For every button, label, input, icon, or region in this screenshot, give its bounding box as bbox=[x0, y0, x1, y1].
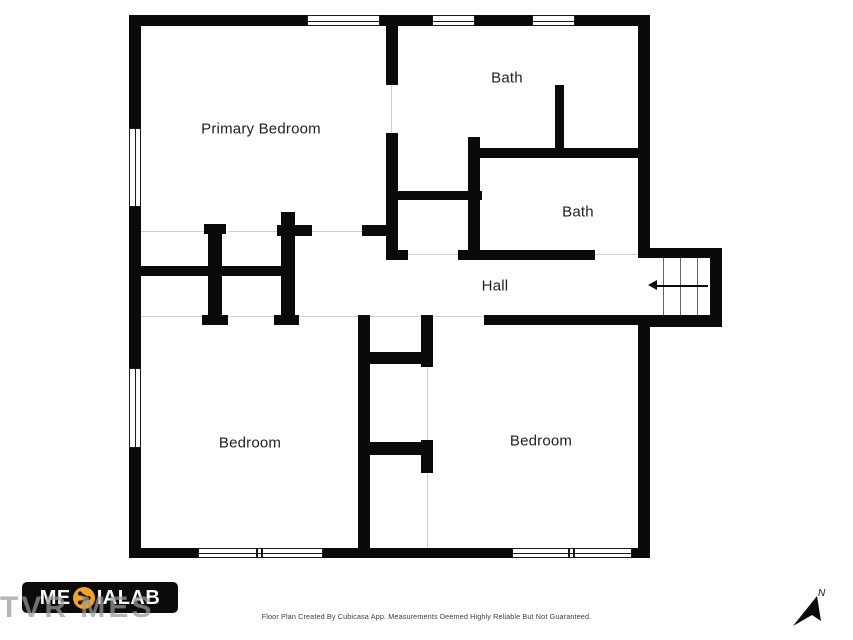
window-center-line bbox=[533, 21, 574, 22]
door-opening bbox=[141, 316, 202, 317]
window-mullion bbox=[261, 549, 263, 557]
stair-direction-arrow bbox=[648, 280, 657, 290]
window-mullion bbox=[256, 549, 258, 557]
window-center-line bbox=[135, 369, 136, 447]
stair-direction-line bbox=[657, 285, 708, 287]
wall-segment bbox=[638, 315, 722, 327]
window bbox=[532, 15, 575, 26]
door-opening bbox=[228, 231, 277, 232]
room-label-hall: Hall bbox=[482, 278, 509, 295]
window-center-line bbox=[513, 553, 631, 554]
wall-segment bbox=[204, 224, 226, 234]
room-label-bath-upper: Bath bbox=[491, 70, 523, 87]
window bbox=[307, 15, 380, 26]
wall-segment bbox=[274, 315, 299, 325]
door-opening bbox=[433, 316, 484, 317]
door-opening bbox=[427, 367, 428, 440]
window-center-line bbox=[433, 21, 474, 22]
door-opening bbox=[408, 254, 458, 255]
wall-segment bbox=[362, 225, 398, 236]
north-compass: N bbox=[790, 586, 836, 634]
wall-segment bbox=[638, 15, 650, 258]
door-opening bbox=[595, 254, 638, 255]
watermark-text: TVR MES bbox=[0, 591, 154, 625]
door-opening bbox=[312, 231, 362, 232]
wall-segment bbox=[129, 15, 141, 558]
wall-segment bbox=[387, 191, 482, 200]
door-opening bbox=[228, 316, 274, 317]
window bbox=[129, 128, 141, 207]
north-arrow-icon bbox=[790, 594, 826, 630]
wall-segment bbox=[638, 315, 650, 558]
wall-segment bbox=[277, 225, 312, 236]
room-label-bath-lower: Bath bbox=[562, 204, 594, 221]
wall-segment bbox=[386, 250, 408, 260]
door-opening bbox=[391, 85, 392, 133]
wall-segment bbox=[358, 315, 370, 558]
room-label-bedroom-left: Bedroom bbox=[219, 435, 281, 452]
wall-segment bbox=[555, 85, 564, 155]
wall-segment bbox=[386, 26, 398, 85]
window-mullion bbox=[568, 549, 570, 557]
window-center-line bbox=[135, 129, 136, 206]
floor-plan-page: Primary BedroomBathBathHallBedroomBedroo… bbox=[0, 0, 853, 640]
wall-segment bbox=[202, 315, 228, 325]
door-opening bbox=[427, 473, 428, 548]
door-opening bbox=[299, 316, 358, 317]
window bbox=[198, 548, 323, 558]
window-center-line bbox=[308, 21, 379, 22]
room-label-primary-bedroom: Primary Bedroom bbox=[201, 121, 321, 138]
window-mullion bbox=[573, 549, 575, 557]
window bbox=[512, 548, 632, 558]
wall-segment bbox=[480, 148, 650, 158]
floor-plan-drawing: Primary BedroomBathBathHallBedroomBedroo… bbox=[0, 0, 853, 640]
window bbox=[129, 368, 141, 448]
window bbox=[432, 15, 475, 26]
wall-segment bbox=[484, 315, 650, 325]
room-label-bedroom-right: Bedroom bbox=[510, 433, 572, 450]
wall-segment bbox=[370, 352, 433, 364]
door-opening bbox=[370, 316, 421, 317]
wall-segment bbox=[208, 224, 222, 320]
door-opening bbox=[141, 231, 204, 232]
wall-segment bbox=[370, 442, 425, 455]
